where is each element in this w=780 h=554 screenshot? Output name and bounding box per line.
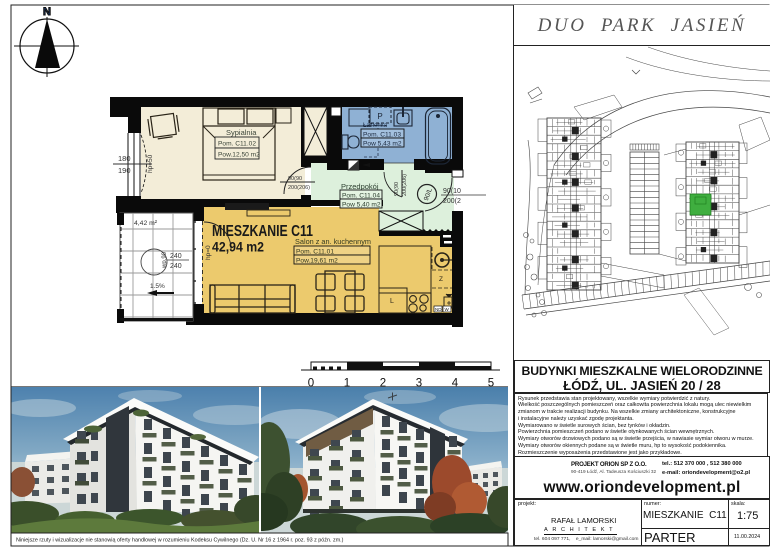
svg-text:Pom. C11.03: Pom. C11.03 bbox=[363, 132, 401, 139]
svg-text:Pow.19,61 m2: Pow.19,61 m2 bbox=[296, 258, 338, 265]
svg-text:Z: Z bbox=[439, 276, 443, 283]
svg-text:90(90: 90(90 bbox=[394, 182, 400, 196]
svg-text:0: 0 bbox=[308, 378, 314, 390]
svg-text:2: 2 bbox=[380, 378, 386, 390]
svg-text:Pow.12,50 m2: Pow.12,50 m2 bbox=[218, 152, 260, 159]
svg-text:240: 240 bbox=[170, 263, 182, 270]
svg-text:N: N bbox=[43, 6, 51, 18]
svg-text:90(10: 90(10 bbox=[443, 188, 461, 195]
svg-text:Pom. C11.02: Pom. C11.02 bbox=[218, 141, 256, 148]
svg-text:hp=50: hp=50 bbox=[147, 154, 154, 173]
svg-text:Pow 5,40 m2: Pow 5,40 m2 bbox=[342, 202, 381, 209]
svg-text:Pow 5,43 m2: Pow 5,43 m2 bbox=[363, 141, 402, 148]
svg-text:5: 5 bbox=[488, 378, 494, 390]
svg-text:4: 4 bbox=[452, 378, 459, 390]
svg-text:190: 190 bbox=[118, 166, 131, 175]
svg-text:Łazienka: Łazienka bbox=[363, 123, 388, 129]
svg-text:Salon z an. kuchennym: Salon z an. kuchennym bbox=[295, 237, 371, 246]
svg-text:200(2: 200(2 bbox=[443, 198, 461, 205]
svg-text:P: P bbox=[377, 112, 382, 121]
svg-text:L: L bbox=[390, 298, 394, 305]
svg-text:4,42 m²: 4,42 m² bbox=[134, 220, 158, 227]
svg-text:200(206): 200(206) bbox=[402, 174, 408, 196]
svg-text:42,94 m2: 42,94 m2 bbox=[212, 240, 264, 255]
svg-text:90(90: 90(90 bbox=[288, 176, 302, 182]
svg-text:Pom. C11.04: Pom. C11.04 bbox=[342, 193, 380, 200]
svg-text:ND: ND bbox=[435, 307, 442, 312]
svg-text:200(206): 200(206) bbox=[288, 185, 310, 191]
svg-text:1: 1 bbox=[344, 378, 350, 390]
svg-text:1.5%: 1.5% bbox=[150, 283, 165, 290]
svg-text:Pom. C11.01: Pom. C11.01 bbox=[296, 249, 334, 256]
svg-text:Sypialnia: Sypialnia bbox=[226, 128, 257, 137]
svg-text:180: 180 bbox=[118, 154, 131, 163]
svg-text:3: 3 bbox=[416, 378, 422, 390]
svg-text:240: 240 bbox=[170, 253, 182, 260]
svg-text:hp=0: hp=0 bbox=[205, 245, 212, 260]
